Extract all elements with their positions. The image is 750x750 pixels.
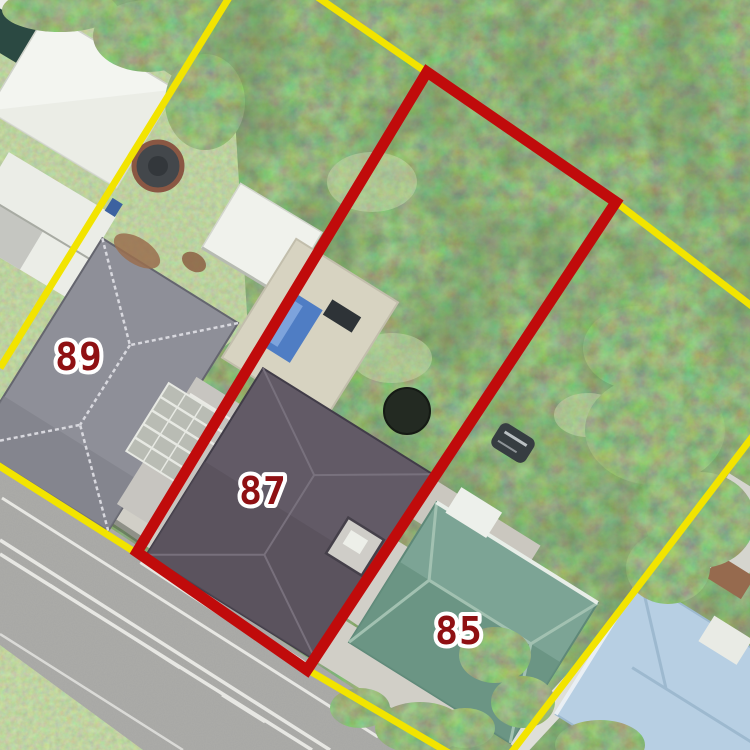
pool-round: [384, 388, 430, 434]
lot-87-label: 87: [239, 469, 287, 513]
aerial-photo-canvas: 89 87 85: [0, 0, 750, 750]
aerial-map: 89 87 85: [0, 0, 750, 750]
trampoline: [134, 142, 182, 190]
lot-85-label: 85: [435, 609, 483, 653]
lot-89-label: 89: [55, 335, 103, 379]
